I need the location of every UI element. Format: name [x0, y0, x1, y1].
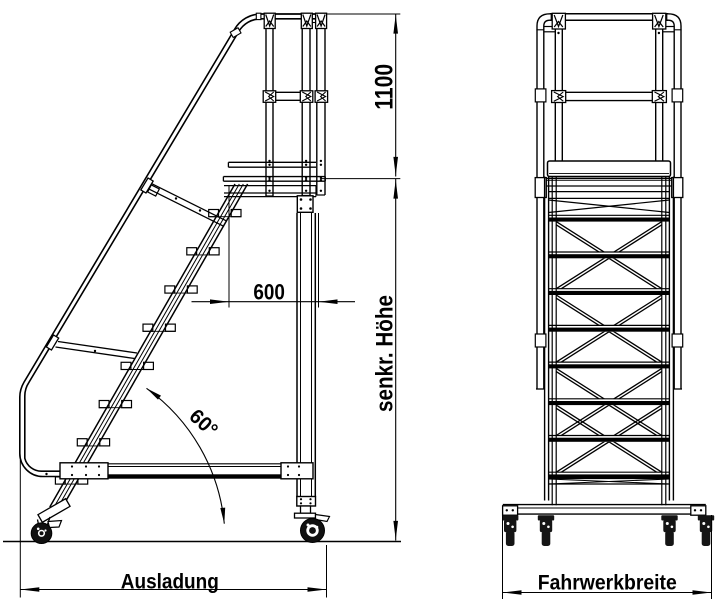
- svg-text:Fahrwerkbreite: Fahrwerkbreite: [538, 570, 677, 594]
- svg-text:Ausladung: Ausladung: [121, 570, 219, 594]
- svg-text:1100: 1100: [371, 64, 399, 110]
- svg-text:senkr. Höhe: senkr. Höhe: [372, 295, 399, 412]
- svg-text:600: 600: [253, 279, 285, 304]
